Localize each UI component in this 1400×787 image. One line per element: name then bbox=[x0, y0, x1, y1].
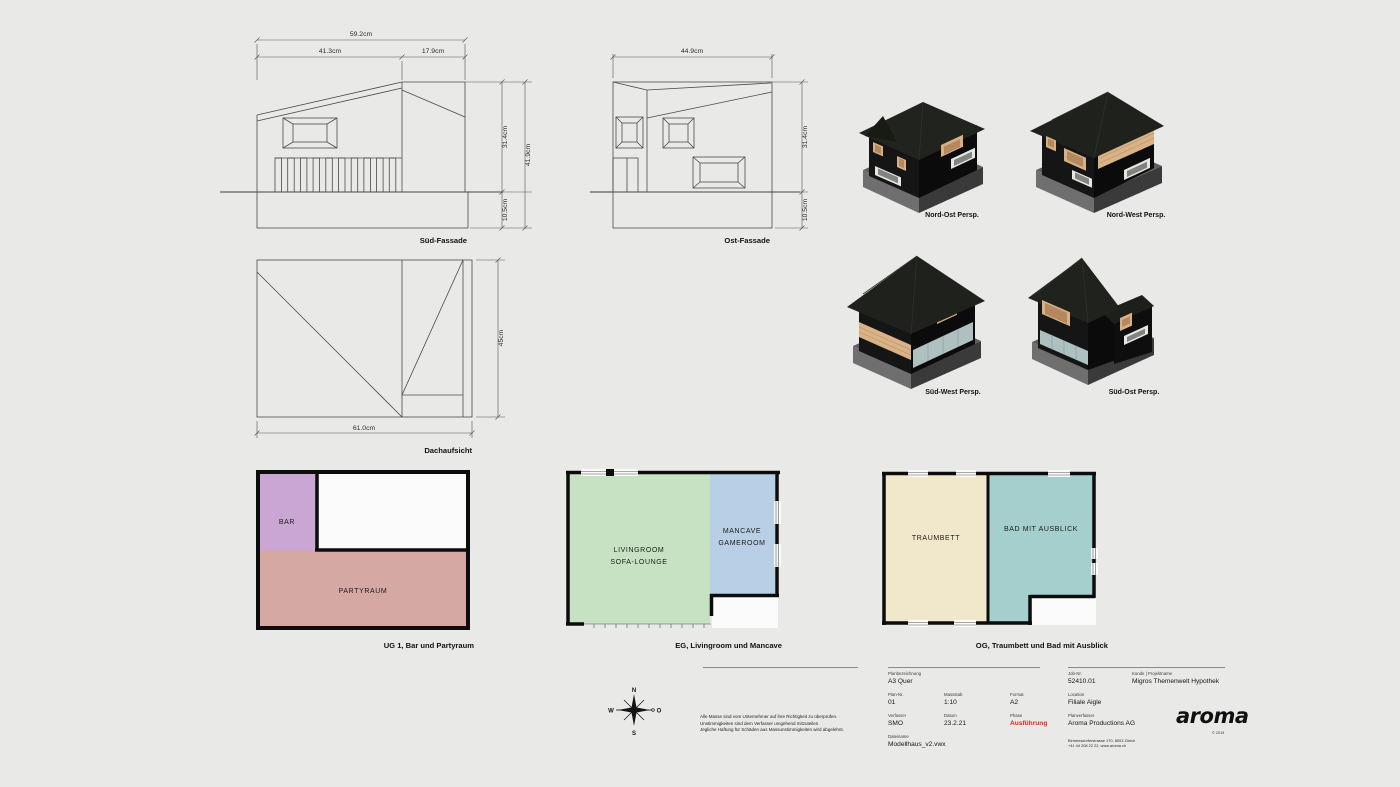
dim-ost-width: 44.9cm bbox=[681, 48, 704, 55]
perspective-sued-ost bbox=[1026, 252, 1161, 385]
ost-fassade-label: Ost-Fassade bbox=[724, 236, 770, 245]
kunde-value: Migros Themenwelt Hypothek bbox=[1132, 678, 1219, 685]
sued-fassade-drawing: 59.2cm 41.3cm 17.9cm 31.4cm 41.9cm 10.5c… bbox=[220, 20, 540, 252]
ost-fassade-drawing: 44.9cm 31.4cm 10.5cm Ost-Fassade bbox=[580, 30, 820, 252]
ost-building bbox=[590, 82, 800, 228]
phase-value: Ausführung bbox=[1010, 720, 1047, 727]
massstab-label: Massstab bbox=[944, 692, 962, 697]
floorplan-ug-label: UG 1, Bar und Partyraum bbox=[258, 641, 474, 650]
compass-north-label: N bbox=[632, 688, 636, 694]
dachaufsicht-drawing: 61.0cm 45cm Dachaufsicht bbox=[230, 250, 530, 462]
og-notch bbox=[1032, 597, 1096, 625]
disclaimer-text: Alle Masse sind vom Unternehmer auf ihre… bbox=[700, 714, 844, 734]
floorplan-ug: BAR PARTYRAUM bbox=[256, 470, 472, 632]
sued-dimensions: 59.2cm 41.3cm 17.9cm bbox=[255, 31, 468, 80]
ost-dimensions: 44.9cm bbox=[611, 48, 775, 78]
dateiname-label: Dateiname bbox=[888, 734, 909, 739]
plan-designation-value: A3 Quer bbox=[888, 678, 913, 685]
disclaimer-line-3: Jegliche Haftung für Schäden aus Massuns… bbox=[700, 727, 844, 734]
address-block: Birmensdorferstrasse 170, 8003 Zürich +4… bbox=[1068, 738, 1135, 749]
job-nr-value: 52410.01 bbox=[1068, 678, 1096, 685]
job-nr-label: Job-Nr. bbox=[1068, 671, 1082, 676]
room-mancave-label-1: MANCAVE bbox=[723, 528, 761, 535]
eg-railing-ticks bbox=[594, 624, 704, 628]
format-label: Format bbox=[1010, 692, 1024, 697]
room-bad-label: BAD MIT AUSBLICK bbox=[1004, 526, 1078, 533]
floorplan-og-label: OG, Traumbett und Bad mit Ausblick bbox=[882, 641, 1108, 650]
phase-label: Phase bbox=[1010, 713, 1022, 718]
compass-south-label: S bbox=[632, 731, 636, 737]
aroma-logo: aroma bbox=[1176, 704, 1249, 728]
verfasser-label: Verfasser bbox=[888, 713, 906, 718]
floorplan-og: TRAUMBETT BAD MIT AUSBLICK bbox=[882, 470, 1102, 630]
plan-nr-value: 01 bbox=[888, 699, 895, 706]
dim-dach-height: 45cm bbox=[498, 329, 505, 346]
location-value: Filiale Aigle bbox=[1068, 699, 1101, 706]
ost-dimensions-right: 31.4cm 10.5cm bbox=[772, 80, 809, 231]
room-bad-area-ext bbox=[988, 595, 1030, 623]
dim-sued-full: 41.9cm bbox=[525, 144, 532, 167]
dim-dach-width: 61.0cm bbox=[353, 425, 376, 432]
kunde-label: Kunde | Projektname bbox=[1132, 671, 1172, 676]
perspective-nord-ost-label: Nord-Ost Persp. bbox=[892, 212, 1012, 219]
eg-terrace-notch bbox=[712, 597, 778, 628]
dim-ost-wall: 31.4cm bbox=[802, 126, 809, 149]
dateiname-value: Modellhaus_v2.vwx bbox=[888, 741, 946, 748]
plan-sheet: { "sheet": {"background": "#e9e9e7"}, "e… bbox=[0, 0, 1400, 787]
sued-dimensions-right: 31.4cm 41.9cm 10.5cm bbox=[465, 80, 532, 231]
dim-sued-right: 17.9cm bbox=[422, 48, 445, 55]
room-partyraum-label: PARTYRAUM bbox=[339, 588, 388, 595]
perspective-nord-west-label: Nord-West Persp. bbox=[1076, 212, 1196, 219]
room-traumbett-area bbox=[884, 473, 988, 623]
disclaimer-line-1: Alle Masse sind vom Unternehmer auf ihre… bbox=[700, 714, 844, 721]
floorplan-eg-label: EG, Livingroom und Mancave bbox=[566, 641, 782, 650]
aroma-logo-copyright: © 2019 bbox=[1212, 731, 1224, 735]
perspective-nord-west bbox=[1028, 86, 1168, 211]
plan-nr-label: Plan-Nr. bbox=[888, 692, 904, 697]
room-livingroom-label-1: LIVINGROOM bbox=[614, 547, 665, 554]
planverfasser-value: Aroma Productions AG bbox=[1068, 720, 1135, 727]
dim-sued-left: 41.3cm bbox=[319, 48, 342, 55]
dach-building bbox=[257, 260, 472, 417]
dim-sued-wall: 31.4cm bbox=[502, 126, 509, 149]
format-value: A2 bbox=[1010, 699, 1018, 706]
dachaufsicht-label: Dachaufsicht bbox=[424, 446, 472, 455]
room-ug-empty bbox=[317, 473, 468, 550]
dach-dimensions: 61.0cm 45cm bbox=[255, 258, 506, 439]
datum-label: Datum bbox=[944, 713, 957, 718]
dim-ost-base: 10.5cm bbox=[802, 199, 809, 222]
floorplan-eg: LIVINGROOM SOFA-LOUNGE MANCAVE GAMEROOM bbox=[566, 469, 784, 632]
massstab-value: 1:10 bbox=[944, 699, 957, 706]
perspective-sued-west bbox=[845, 250, 987, 390]
sued-building bbox=[220, 82, 503, 228]
sued-fassade-label: Süd-Fassade bbox=[420, 236, 467, 245]
location-label: Location bbox=[1068, 692, 1084, 697]
room-bad-area bbox=[988, 473, 1094, 595]
room-livingroom-label-2: SOFA-LOUNGE bbox=[610, 559, 667, 566]
room-traumbett-label: TRAUMBETT bbox=[912, 535, 960, 542]
verfasser-value: SMO bbox=[888, 720, 903, 727]
planverfasser-label: Planverfasser bbox=[1068, 713, 1094, 718]
compass-west-label: W bbox=[608, 709, 614, 715]
compass-east-label: O bbox=[657, 709, 662, 715]
perspective-nord-ost bbox=[857, 86, 987, 211]
dim-sued-total: 59.2cm bbox=[350, 31, 373, 38]
perspective-sued-west-label: Süd-West Persp. bbox=[893, 389, 1013, 396]
footer-rule-1 bbox=[703, 667, 858, 668]
perspective-sued-ost-label: Süd-Ost Persp. bbox=[1074, 389, 1194, 396]
room-bar-label: BAR bbox=[279, 519, 295, 526]
compass-rose: N S W O bbox=[606, 684, 664, 736]
dim-sued-base: 10.5cm bbox=[502, 199, 509, 222]
compass-star-icon bbox=[618, 694, 650, 726]
footer-rule-2 bbox=[888, 667, 1040, 668]
disclaimer-line-2: Unstimmigkeiten sind dem Verfasser umgeh… bbox=[700, 721, 844, 728]
room-mancave-label-2: GAMEROOM bbox=[718, 540, 765, 547]
address-line-2: +41 44 208 22 22, www.aroma.ch bbox=[1068, 743, 1135, 748]
footer-rule-3 bbox=[1068, 667, 1225, 668]
datum-value: 23.2.21 bbox=[944, 720, 966, 727]
plan-designation-label: Planbezeichnung bbox=[888, 671, 921, 676]
room-bar-area bbox=[259, 474, 317, 550]
eg-window-top bbox=[581, 469, 638, 476]
